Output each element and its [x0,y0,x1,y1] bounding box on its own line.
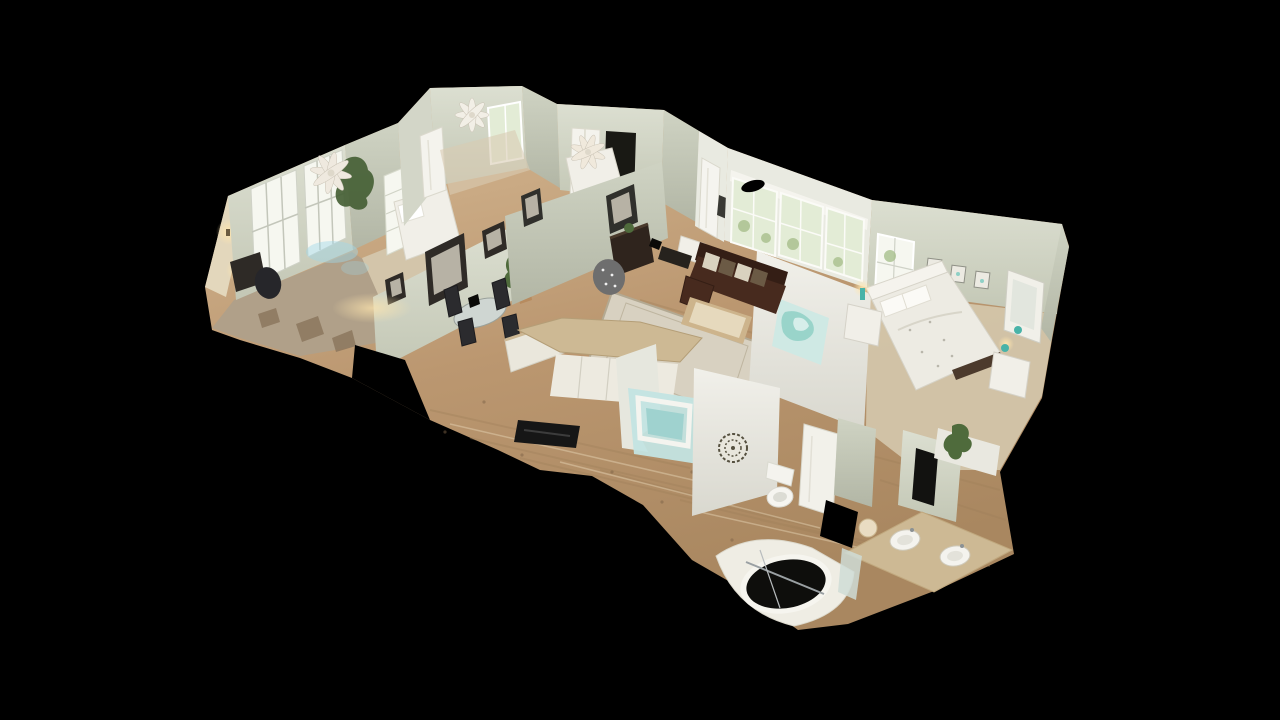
bedroom-a-ceiling-fan [455,98,489,132]
bedroom-b-right-wall [661,110,699,222]
vanity-lamp [1001,344,1009,352]
hall-warm-glow [332,293,412,323]
dresser-plant [624,223,634,233]
dollhouse-3d-viewport[interactable] [0,0,1280,720]
vanity-faucet-2 [960,544,964,548]
master-window-foliage [884,250,896,262]
master-bath-wall-a [834,418,876,507]
cyan-haze-1 [306,241,358,263]
vanity-faucet-1 [910,528,914,532]
wall-medallion-center [731,446,735,450]
dollhouse-render [0,0,1280,720]
dresser-mirror-glass [1010,279,1037,330]
master-bath-doorway-void [912,448,938,506]
sconce-upper [226,229,230,236]
bathroom-door-open [799,424,838,516]
nightstand-lamp [860,288,865,300]
cyan-haze-2 [341,261,369,275]
bedroom-a-door [420,127,446,198]
front-door [699,158,720,238]
dresser-lamp [1014,326,1022,334]
nightstand [844,304,882,346]
round-basin [859,519,877,537]
